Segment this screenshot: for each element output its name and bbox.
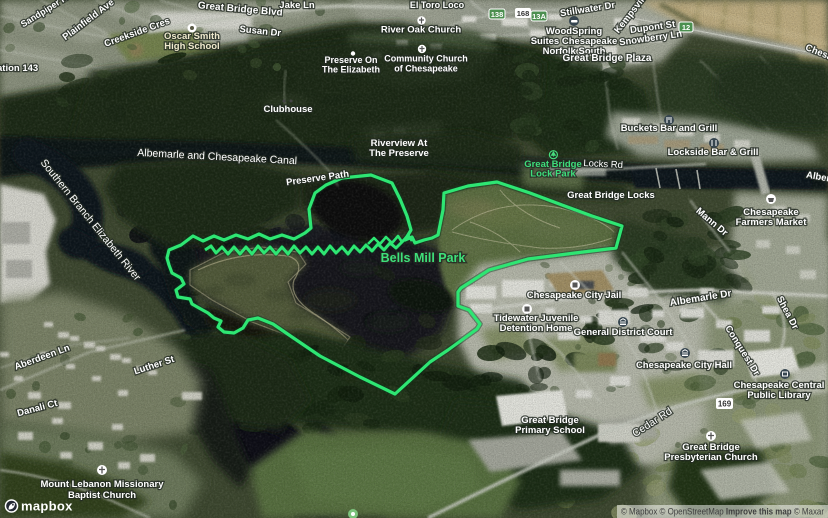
svg-text:138: 138 [491,10,504,19]
svg-text:Primary School: Primary School [515,425,585,436]
svg-text:High School: High School [164,41,219,52]
svg-text:Clubhouse: Clubhouse [263,104,312,115]
svg-text:The Elizabeth: The Elizabeth [322,65,380,75]
svg-text:River Oak Church: River Oak Church [381,25,461,36]
svg-text:Chesa: Chesa [804,42,828,63]
svg-text:169: 169 [718,400,732,409]
svg-text:Creekside Cres: Creekside Cres [103,16,172,50]
svg-text:General District Court: General District Court [574,327,674,338]
svg-text:The Preserve: The Preserve [369,148,429,159]
svg-text:Farmers Market: Farmers Market [736,217,808,228]
svg-text:Preserve Path: Preserve Path [286,169,350,189]
svg-text:of Chesapeake: of Chesapeake [394,64,458,74]
svg-text:Presbyterian Church: Presbyterian Church [664,452,758,463]
svg-text:13A: 13A [532,12,546,21]
svg-text:Susan Dr: Susan Dr [239,24,282,39]
svg-text:168: 168 [517,9,530,18]
svg-text:Great Bridge Plaza: Great Bridge Plaza [563,53,652,64]
svg-text:mapbox: mapbox [21,499,73,514]
svg-text:Great Bridge Blvd: Great Bridge Blvd [197,0,283,18]
svg-text:Albemarle and Chesapeake Canal: Albemarle and Chesapeake Canal [137,147,297,167]
svg-text:Sandpiper Rd: Sandpiper Rd [19,0,74,29]
svg-text:12: 12 [682,23,690,32]
svg-text:Community Church: Community Church [384,54,468,64]
svg-text:© Mapbox © OpenStreetMap Impro: © Mapbox © OpenStreetMap Improve this ma… [621,507,824,517]
svg-text:Preserve On: Preserve On [324,55,377,65]
svg-text:Chesapeake City Hall: Chesapeake City Hall [636,360,732,371]
svg-text:Albem: Albem [805,170,828,186]
svg-text:Danali Ct: Danali Ct [16,398,59,419]
svg-text:Luther St: Luther St [133,354,177,378]
svg-text:Stillwater Dr: Stillwater Dr [559,0,616,19]
svg-text:Cedar Rd: Cedar Rd [630,405,674,440]
svg-text:Bells Mill Park: Bells Mill Park [381,251,466,265]
svg-text:Aberdeen Ln: Aberdeen Ln [13,342,72,372]
svg-text:Jake Ln: Jake Ln [279,0,315,11]
svg-text:Public Library: Public Library [747,390,811,401]
svg-text:Shea Dr: Shea Dr [774,294,801,331]
svg-text:Locks Rd: Locks Rd [583,158,623,171]
svg-text:Mann Dr: Mann Dr [694,206,730,239]
svg-text:Chesapeake City Jail: Chesapeake City Jail [527,290,622,301]
svg-text:Southern Branch Elizabeth Rive: Southern Branch Elizabeth River [38,157,144,283]
svg-text:tation 143: tation 143 [0,63,38,74]
svg-text:Baptist Church: Baptist Church [68,490,136,501]
svg-text:Great Bridge Locks: Great Bridge Locks [567,190,655,201]
svg-text:Mount Lebanon Missionary: Mount Lebanon Missionary [41,479,165,490]
svg-text:El Toro Loco: El Toro Loco [410,0,465,10]
svg-text:Lock Park: Lock Park [530,169,576,180]
svg-text:Lockside Bar & Grill: Lockside Bar & Grill [668,147,759,158]
svg-text:Detention Home: Detention Home [500,323,573,334]
svg-text:Albemarle Dr: Albemarle Dr [669,288,732,309]
